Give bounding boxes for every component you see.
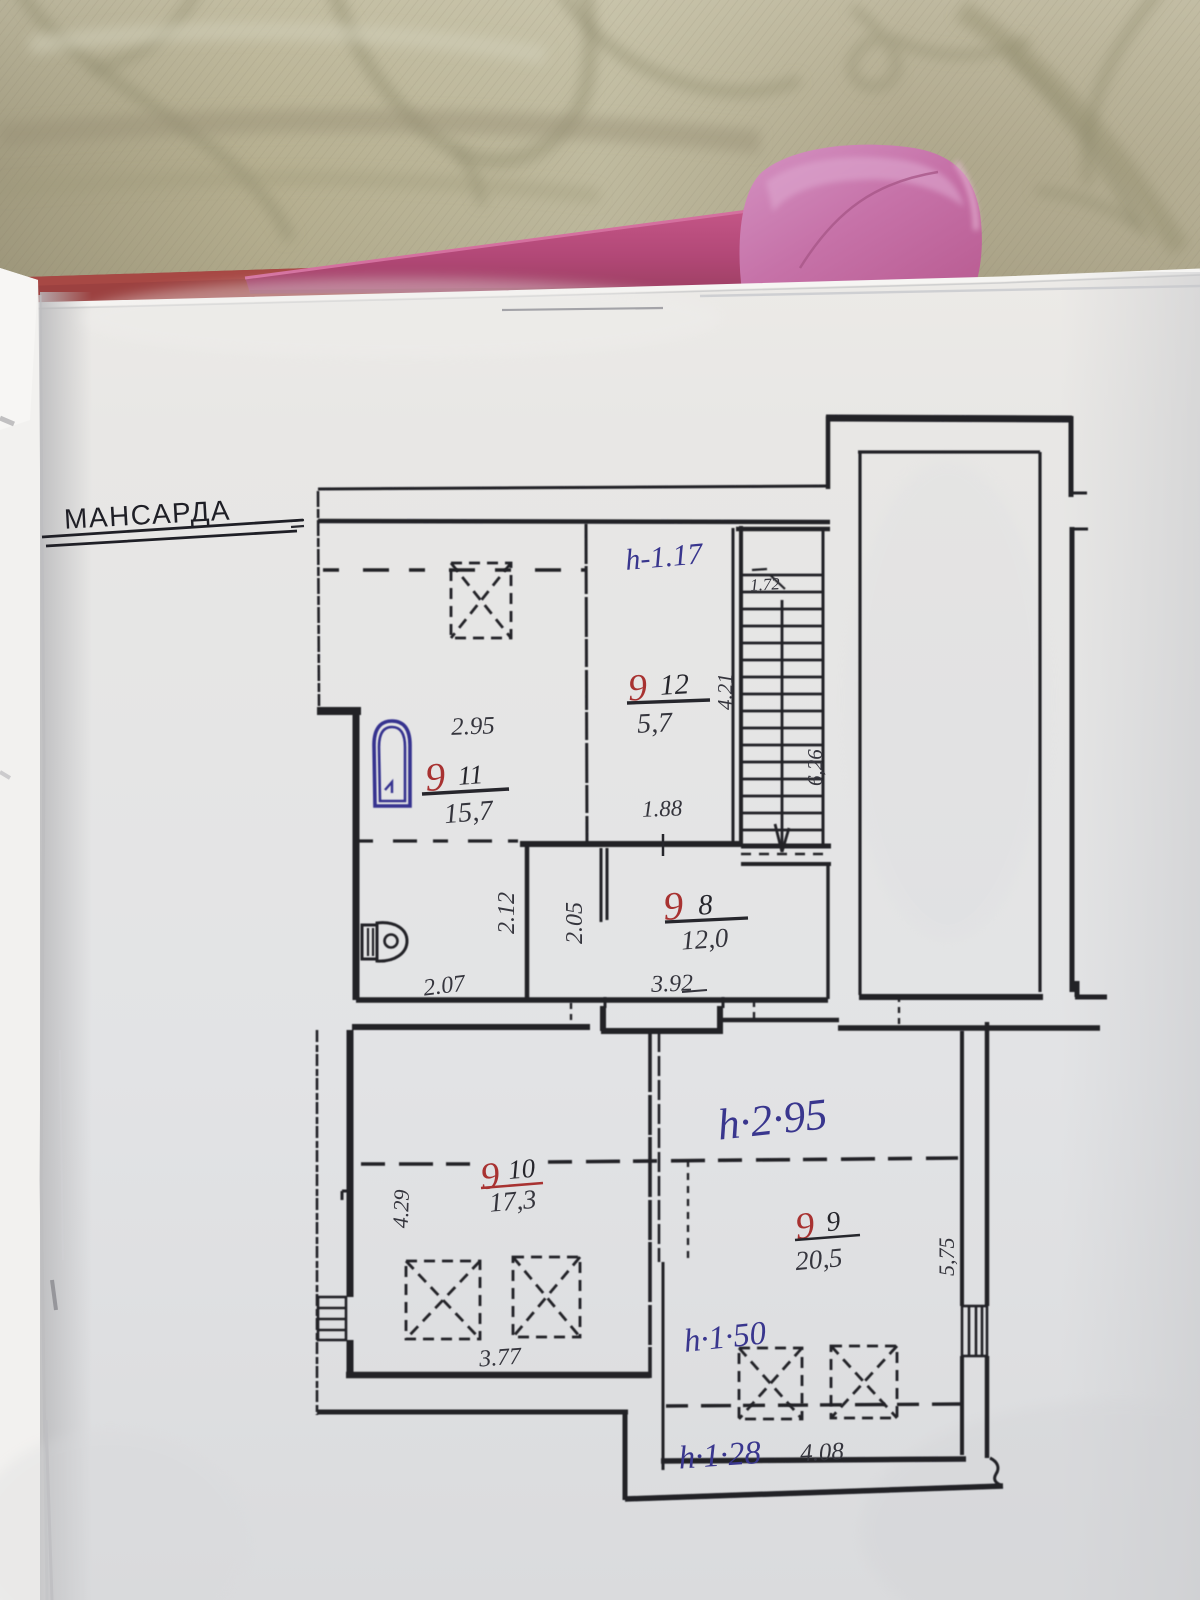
- svg-text:5,75: 5,75: [934, 1238, 959, 1277]
- svg-text:11: 11: [457, 759, 484, 791]
- svg-text:h·1·28: h·1·28: [677, 1435, 762, 1477]
- svg-text:8: 8: [697, 889, 714, 922]
- svg-text:4.08: 4.08: [799, 1438, 845, 1467]
- svg-text:2.95: 2.95: [451, 712, 496, 741]
- svg-text:2.07: 2.07: [422, 971, 468, 1002]
- svg-text:10: 10: [507, 1153, 537, 1185]
- svg-text:1.88: 1.88: [642, 795, 684, 821]
- svg-text:4.29: 4.29: [388, 1189, 414, 1228]
- svg-text:2.05: 2.05: [562, 902, 588, 944]
- svg-text:12,0: 12,0: [680, 922, 730, 955]
- svg-text:3.77: 3.77: [477, 1343, 523, 1372]
- svg-text:1.72: 1.72: [750, 574, 781, 595]
- svg-text:6,26: 6,26: [803, 749, 827, 786]
- svg-text:4.21: 4.21: [713, 673, 737, 710]
- svg-text:17,3: 17,3: [488, 1184, 538, 1218]
- svg-text:15,7: 15,7: [443, 795, 496, 830]
- svg-text:2.12: 2.12: [494, 892, 520, 934]
- svg-text:h-1.17: h-1.17: [624, 537, 706, 577]
- svg-text:3.92: 3.92: [650, 970, 694, 997]
- svg-text:5,7: 5,7: [636, 707, 674, 740]
- svg-text:12: 12: [659, 668, 690, 701]
- svg-text:20,5: 20,5: [794, 1242, 844, 1276]
